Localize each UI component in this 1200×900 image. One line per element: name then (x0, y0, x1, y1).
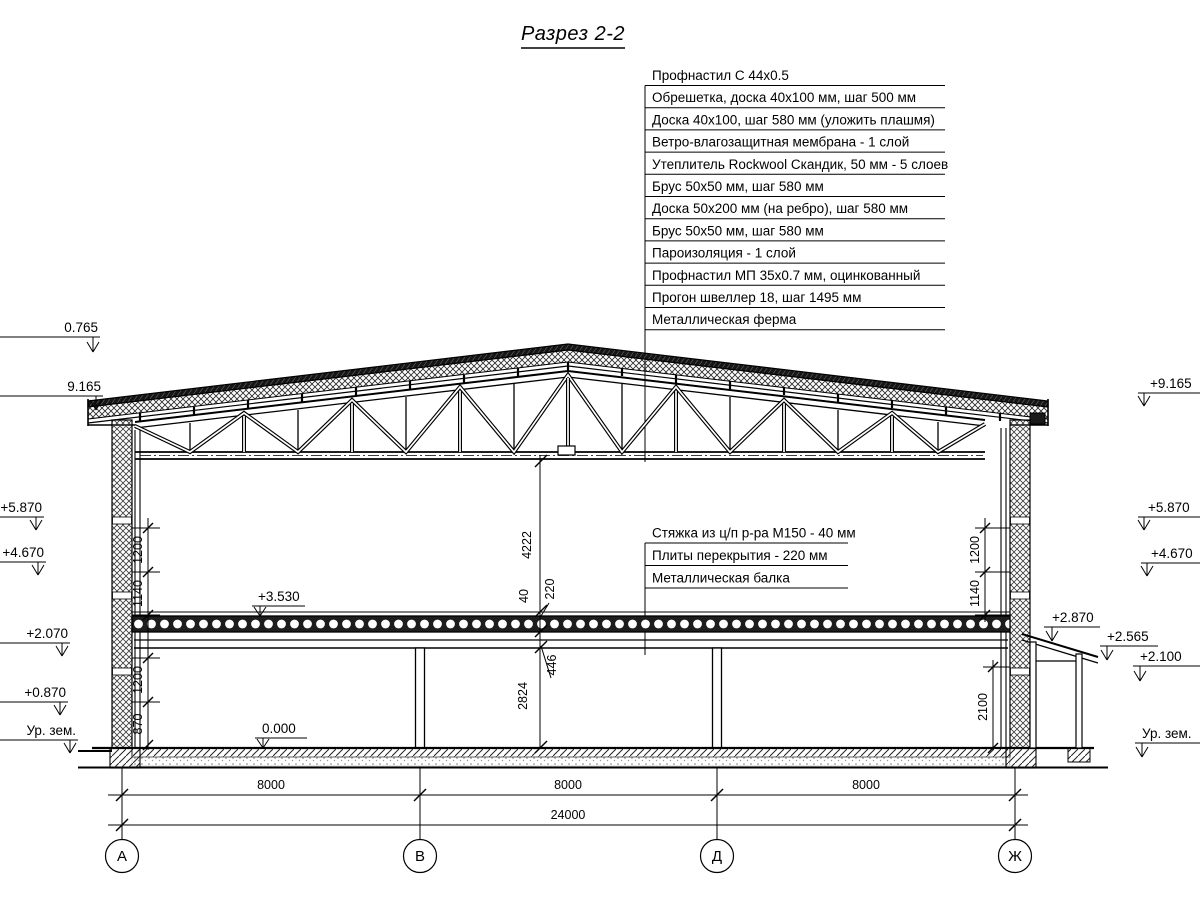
floor-slab (132, 612, 1010, 648)
eave-channel (1030, 413, 1045, 424)
dim-label: 2100 (976, 693, 990, 721)
roof-callout-item: Металлическая ферма (652, 312, 797, 327)
level-arrow (1101, 646, 1113, 660)
level-label: +4.670 (2, 545, 44, 560)
dim-label: 40 (517, 589, 531, 603)
elevation-marks-right: +9.165 +5.870 +4.670 +2.870 +2.565 +2.10… (1044, 376, 1200, 757)
level-arrow (54, 702, 66, 715)
axis-label: Ж (1008, 848, 1022, 865)
level-mark: +5.870 (1138, 500, 1200, 530)
level-label: +2.100 (1140, 649, 1182, 664)
roof-callout-item: Прогон швеллер 18, шаг 1495 мм (652, 290, 861, 305)
level-label: +4.670 (1151, 546, 1193, 561)
roof-callout-item: Доска 50х200 мм (на ребро), шаг 580 мм (652, 201, 908, 216)
level-arrow (32, 562, 44, 575)
roof-callout-item: Брус 50х50 мм, шаг 580 мм (652, 179, 824, 194)
level-mark: +2.070 (0, 626, 70, 656)
level-label: +3.530 (258, 589, 300, 604)
dim-label: 8000 (554, 778, 582, 792)
elevation-marks-left: 0.765 9.165 +5.870 +4.670 +2.070 +0.870 … (0, 320, 103, 753)
level-label: +5.870 (1148, 500, 1190, 515)
right-dimensions: 1200 1140 2100 (968, 518, 1010, 753)
dim-label: 1140 (131, 580, 145, 607)
center-dimensions: 4222 40 220 446 2824 (516, 455, 559, 753)
dim-label: 4222 (520, 531, 534, 559)
level-arrow (1134, 666, 1146, 681)
right-wall (1010, 420, 1030, 748)
dim-label: 1200 (131, 536, 145, 564)
level-arrow (257, 738, 269, 748)
roof-callout-item: Утеплитель Rockwool Скандик, 50 мм - 5 с… (652, 157, 948, 172)
level-label: +2.565 (1107, 629, 1149, 644)
ground (78, 748, 1108, 768)
dim-label: 1200 (131, 666, 145, 694)
floor-underlay (132, 757, 1010, 766)
column-axis-b (416, 648, 425, 748)
roof-callout-item: Доска 40х100, шаг 580 мм (уложить плашмя… (652, 112, 935, 127)
level-arrow (1046, 627, 1058, 641)
dim-label: 1140 (968, 580, 982, 607)
level-mark: +0.870 (0, 685, 68, 715)
inner-level-marks: +3.530 0.000 (252, 589, 307, 748)
roof-callout-item: Профнастил С 44х0.5 (652, 68, 789, 83)
truss-detail-plate (558, 446, 575, 455)
level-mark: Ур. зем. (1135, 726, 1200, 757)
hollow-core-slab (132, 616, 1010, 632)
annex-post-right (1076, 654, 1082, 748)
level-label: 9.165 (67, 379, 101, 394)
dim-label: 24000 (551, 808, 586, 822)
axis-bubbles: А В Д Ж (106, 840, 1032, 873)
dim-label: 8000 (257, 778, 285, 792)
level-label: +2.870 (1052, 610, 1094, 625)
column-axis-d (713, 648, 722, 748)
floor-callout-item: Стяжка из ц/п р-ра М150 - 40 мм (652, 526, 856, 541)
dim-label: 8000 (852, 778, 880, 792)
floor-screed-hatch (132, 748, 1010, 757)
foundation-right (1006, 748, 1036, 768)
foundation-annex (1068, 748, 1090, 762)
floor-callout-item: Плиты перекрытия - 220 мм (652, 548, 828, 563)
level-label: +9.165 (1150, 376, 1192, 391)
level-label: 0.000 (262, 721, 296, 736)
level-mark: +2.100 (1133, 649, 1200, 681)
level-mark: +4.670 (0, 545, 46, 575)
axis-label: А (117, 848, 127, 865)
level-label: Ур. зем. (1142, 726, 1192, 741)
dim-label: 870 (131, 714, 145, 735)
floor-callout-list: Стяжка из ц/п р-ра М150 - 40 мм Плиты пе… (645, 526, 856, 656)
level-arrow (64, 740, 76, 753)
roof-callout-item: Профнастил МП 35х0.7 мм, оцинкованный (652, 268, 920, 283)
columns (416, 648, 722, 748)
level-arrow (1141, 563, 1153, 576)
bottom-dimensions: 8000 8000 8000 24000 А В Д Ж (106, 768, 1032, 873)
level-arrow (254, 606, 266, 616)
annex (1022, 634, 1098, 748)
level-arrow (1138, 517, 1150, 530)
annex-post-left (1030, 642, 1036, 748)
foundation-left (110, 748, 140, 768)
page-title: Разрез 2-2 (521, 23, 625, 48)
left-wall (112, 420, 132, 748)
roof-callout-item: Брус 50х50 мм, шаг 580 мм (652, 223, 824, 238)
floor-callout-item: Металлическая балка (652, 571, 790, 586)
level-label: +0.870 (24, 685, 66, 700)
level-mark: Ур. зем. (0, 723, 78, 753)
title-text: Разрез 2-2 (521, 23, 625, 45)
level-arrow (30, 517, 42, 530)
level-mark: 0.000 (255, 721, 307, 748)
level-mark: +2.870 (1044, 610, 1100, 641)
level-mark: +4.670 (1141, 546, 1200, 576)
dim-label: 2824 (516, 682, 530, 710)
roof-callout-item: Обрешетка, доска 40х100 мм, шаг 500 мм (652, 90, 916, 105)
level-label: +2.070 (26, 626, 68, 641)
drawing-canvas: Разрез 2-2 Профнастил С 44х0.5 Обрешетка… (0, 0, 1200, 900)
level-label: 0.765 (64, 320, 98, 335)
level-arrow (56, 643, 68, 656)
roof-callout-item: Ветро-влагозащитная мембрана - 1 слой (652, 135, 909, 150)
dim-label: 220 (543, 579, 557, 600)
dim-label: 1200 (968, 536, 982, 564)
axis-label: Д (712, 848, 722, 865)
level-arrow (1138, 393, 1150, 406)
level-mark: 0.765 (0, 320, 100, 352)
walls (112, 420, 1030, 748)
level-arrow (1136, 743, 1148, 757)
dim-ticks (535, 455, 547, 753)
level-label: Ур. зем. (26, 723, 76, 738)
level-arrow (87, 337, 99, 352)
level-mark: +5.870 (0, 500, 44, 530)
axis-label: В (415, 848, 425, 865)
level-mark: +9.165 (1138, 376, 1200, 406)
roof-callout-item: Пароизоляция - 1 слой (652, 246, 796, 261)
level-label: +5.870 (0, 500, 42, 515)
